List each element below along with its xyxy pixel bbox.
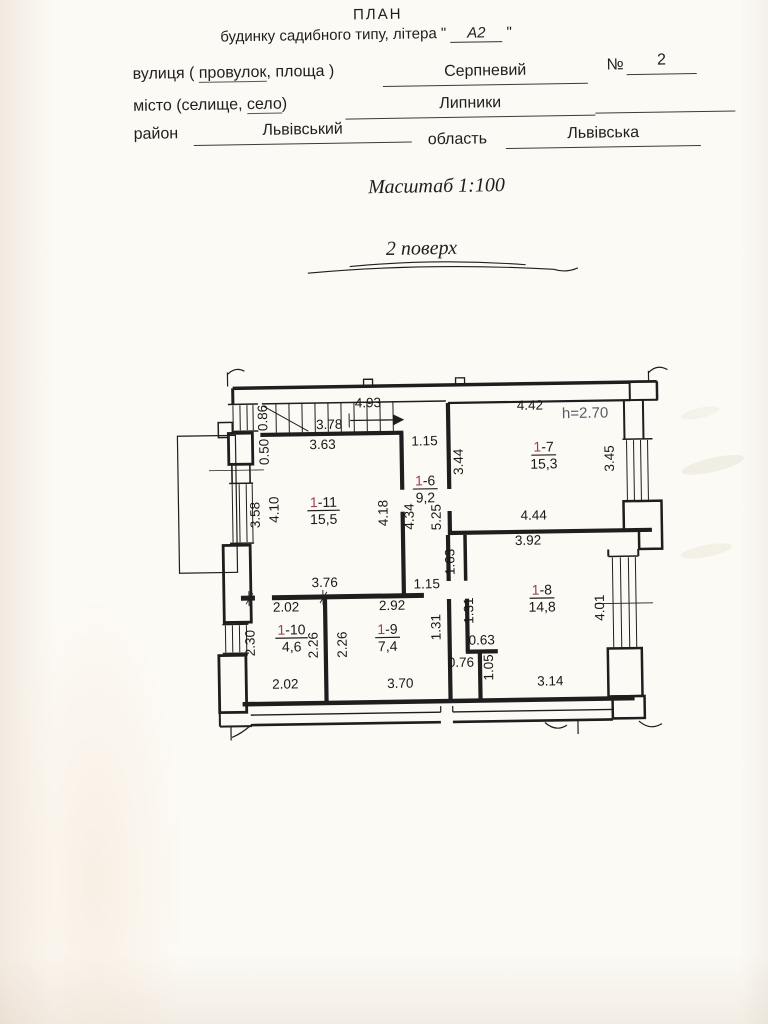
- dimension-label: 1.63: [442, 549, 457, 576]
- room-area: 15,5: [310, 511, 338, 527]
- dimension-label: 3.63: [309, 437, 336, 452]
- dimension-label: 2.92: [379, 598, 406, 613]
- room-area: 15,3: [530, 455, 558, 471]
- room-area: 9,2: [416, 489, 436, 505]
- dimension-label: 2.30: [242, 630, 257, 657]
- dimension-label: 1.15: [413, 576, 440, 591]
- wall-pilaster: [608, 648, 643, 697]
- room-number: 1-11: [310, 494, 337, 510]
- dimension-label: 0.63: [468, 632, 495, 647]
- wall-corner-block: [219, 655, 247, 712]
- dimension-label: 3.78: [316, 417, 343, 432]
- dimension-label: 4.42: [517, 398, 544, 413]
- dimension-label: 3.45: [602, 445, 617, 472]
- dimension-label: 2.02: [273, 599, 300, 614]
- dimension-label: 0.86: [255, 405, 270, 432]
- dimension-label: 3.44: [451, 448, 466, 475]
- plan-sheet: ПЛАН будинку садибного типу, літера " А2…: [0, 0, 768, 1024]
- window-room-1-7: [622, 439, 653, 501]
- outer-wall-bottom: [251, 703, 613, 725]
- outer-wall-top: [233, 375, 657, 407]
- room-area: 7,4: [378, 638, 398, 654]
- room-number: 1-9: [377, 621, 398, 637]
- dimension-label: 4.18: [375, 500, 390, 527]
- dimension-label: 4.10: [266, 496, 281, 523]
- dimension-label: 3.70: [387, 676, 414, 691]
- dimension-label: 1.15: [411, 433, 438, 448]
- dimension-label: 5.25: [428, 504, 443, 531]
- room-number: 1-10: [277, 621, 305, 637]
- dimension-label: 0.50: [256, 439, 271, 466]
- dimension-label: 1.31: [428, 614, 443, 641]
- paper-bleed-marks: [677, 403, 747, 562]
- room-area: 4,6: [282, 638, 302, 654]
- dimension-label: 2.26: [305, 632, 320, 659]
- wall-corner-block: [630, 382, 657, 400]
- floor-title-underline: [308, 260, 578, 275]
- ceiling-height-label: h=2.70: [562, 404, 609, 422]
- dimension-label: 3.14: [537, 673, 564, 688]
- dimension-label: 1.31: [461, 597, 476, 624]
- document-photo: ПЛАН будинку садибного типу, літера " А2…: [0, 0, 768, 1024]
- dimension-label: 4.01: [592, 594, 607, 621]
- room-number: 1-8: [532, 581, 553, 597]
- wall-pilaster: [623, 501, 662, 550]
- dimension-label: 0.76: [448, 655, 475, 670]
- outer-wall-right: [592, 382, 665, 719]
- floor-plan-drawing: 0.863.784.933.631.150.503.584.104.184.34…: [0, 0, 768, 1024]
- dimension-label: 4.44: [520, 507, 547, 522]
- dimension-label: 3.58: [247, 502, 262, 529]
- room-number: 1-7: [533, 438, 554, 454]
- dimension-label: 4.34: [401, 503, 416, 530]
- room-area: 14,8: [528, 598, 556, 614]
- dimension-label: 2.26: [334, 631, 349, 658]
- dimension-label: 2.02: [272, 676, 299, 691]
- dimension-label: 3.76: [311, 575, 338, 590]
- dimension-label: 4.93: [355, 395, 382, 410]
- dimension-label: 1.05: [481, 654, 496, 681]
- wall-corner-block: [228, 433, 252, 464]
- dimension-label: 3.92: [515, 533, 542, 548]
- room-number: 1-6: [415, 472, 436, 488]
- stair-direction-arrow: [349, 413, 404, 428]
